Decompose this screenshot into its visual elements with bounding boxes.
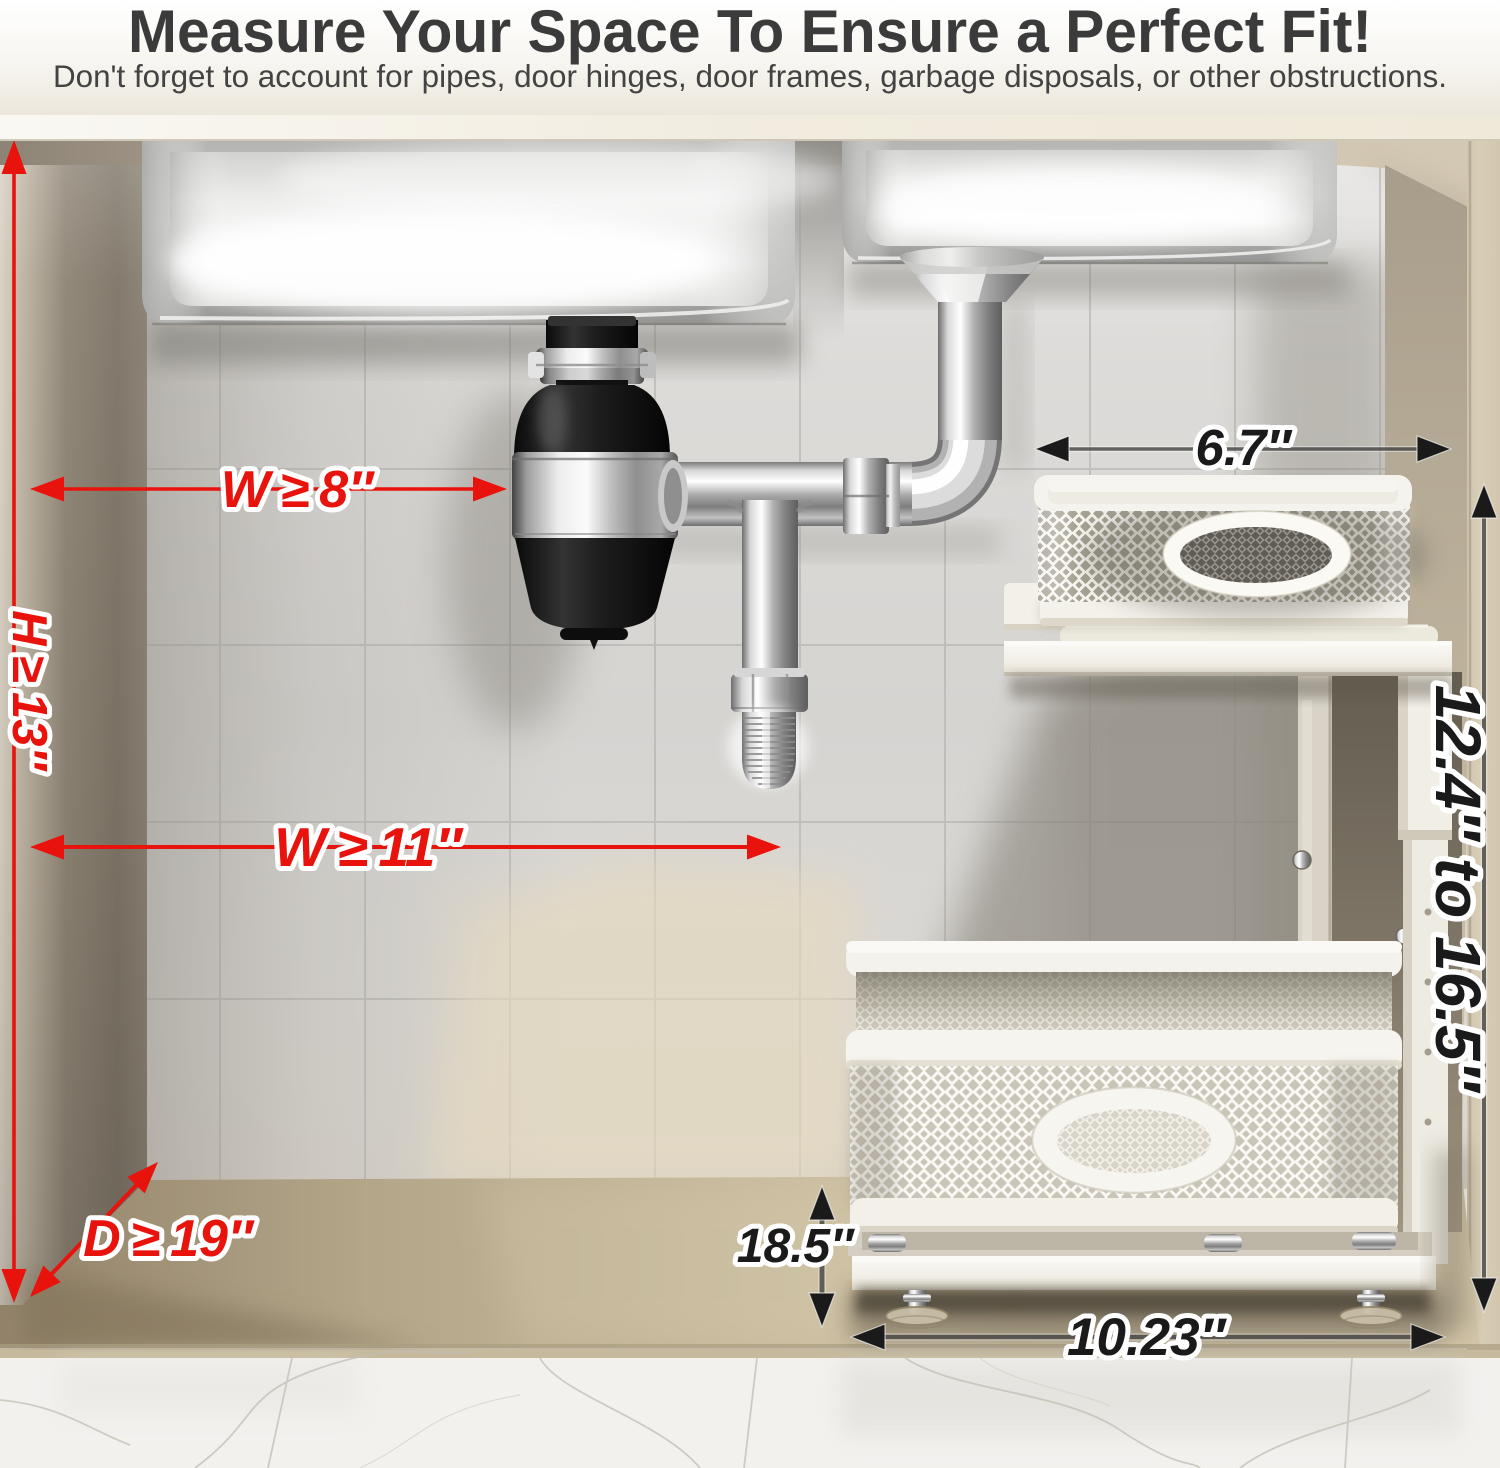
svg-text:6.7″: 6.7″ <box>1195 419 1293 476</box>
svg-text:H ≥ 13″: H ≥ 13″ <box>2 610 56 772</box>
svg-text:18.5″: 18.5″ <box>737 1220 855 1273</box>
svg-text:Don't forget to account for pi: Don't forget to account for pipes, door … <box>53 58 1447 94</box>
svg-text:Measure Your Space To Ensure a: Measure Your Space To Ensure a Perfect F… <box>128 0 1372 65</box>
svg-text:10.23″: 10.23″ <box>1067 1308 1228 1367</box>
svg-text:12.4″ to 16.5″: 12.4″ to 16.5″ <box>1422 685 1494 1094</box>
svg-text:D ≥ 19″: D ≥ 19″ <box>83 1210 255 1268</box>
svg-text:W ≥ 8″: W ≥ 8″ <box>221 461 375 519</box>
svg-text:W ≥ 11″: W ≥ 11″ <box>274 816 464 878</box>
